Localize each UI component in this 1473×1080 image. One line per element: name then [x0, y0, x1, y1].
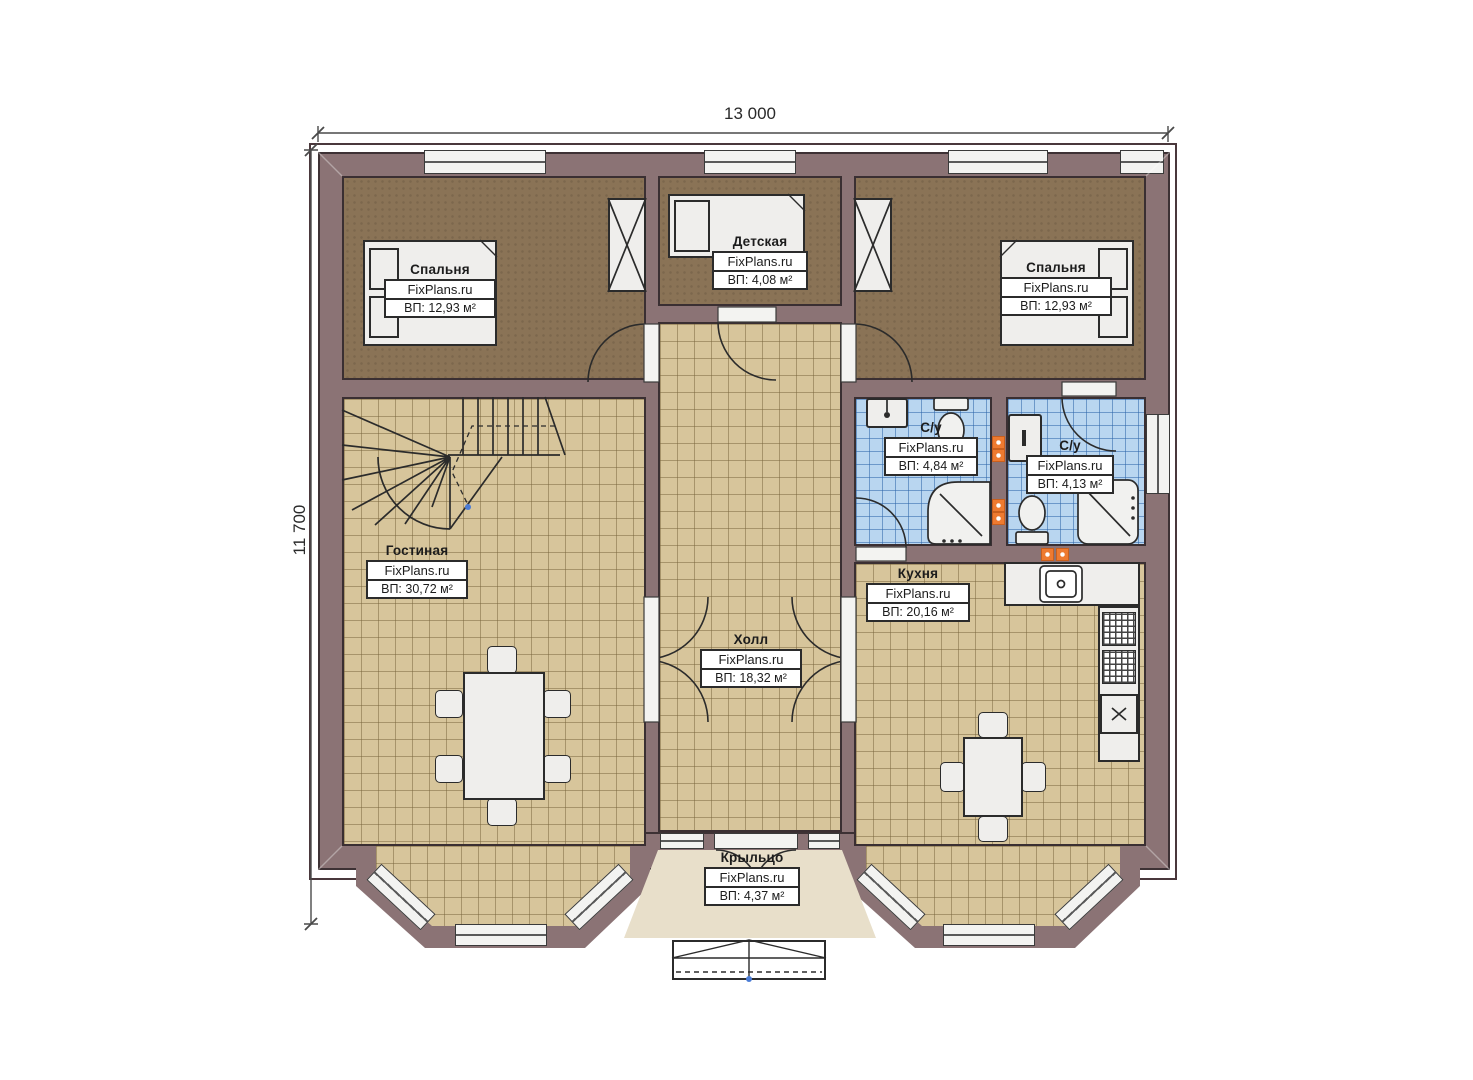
floor-hall	[658, 322, 842, 832]
room-name: Крыльцо	[704, 850, 800, 865]
room-area: ВП: 18,32 м²	[702, 670, 800, 686]
room-label-kitchen: Кухня FixPlans.ru ВП: 20,16 м²	[866, 566, 970, 622]
room-area: ВП: 4,08 м²	[714, 272, 806, 288]
window-right-wall	[1146, 414, 1170, 494]
dining-table	[463, 672, 545, 800]
kitchen-counter-top	[1004, 562, 1140, 606]
window-nursery	[704, 150, 796, 174]
room-info-box: FixPlans.ru ВП: 4,37 м²	[704, 867, 800, 906]
chair	[487, 798, 517, 826]
room-name: Холл	[700, 632, 802, 647]
kitchen-table	[963, 737, 1023, 817]
brand-watermark: FixPlans.ru	[714, 253, 806, 272]
room-label-hall: Холл FixPlans.ru ВП: 18,32 м²	[700, 632, 802, 688]
room-info-box: FixPlans.ru ВП: 4,84 м²	[884, 437, 978, 476]
wardrobe-left	[608, 198, 646, 292]
room-label-bedroom-right: Спальня FixPlans.ru ВП: 12,93 м²	[1000, 260, 1112, 316]
chair	[435, 755, 463, 783]
room-area: ВП: 4,37 м²	[706, 888, 798, 904]
window-top-corner	[1120, 150, 1164, 174]
brand-watermark: FixPlans.ru	[386, 281, 494, 300]
outlet-marker	[1056, 548, 1069, 561]
entry-sidelight-left	[660, 833, 704, 849]
room-info-box: FixPlans.ru ВП: 20,16 м²	[866, 583, 970, 622]
brand-watermark: FixPlans.ru	[868, 585, 968, 604]
outlet-marker	[1041, 548, 1054, 561]
window-bedroom-left	[424, 150, 546, 174]
room-info-box: FixPlans.ru ВП: 30,72 м²	[366, 560, 468, 599]
brand-watermark: FixPlans.ru	[1028, 457, 1112, 476]
outlet-marker	[992, 499, 1005, 512]
brand-watermark: FixPlans.ru	[706, 869, 798, 888]
entry-sidelight-right	[808, 833, 840, 849]
room-label-nursery: Детская FixPlans.ru ВП: 4,08 м²	[712, 234, 808, 290]
outlet-marker	[992, 436, 1005, 449]
brand-watermark: FixPlans.ru	[886, 439, 976, 458]
porch-steps	[672, 940, 826, 980]
chair	[940, 762, 965, 792]
room-info-box: FixPlans.ru ВП: 18,32 м²	[700, 649, 802, 688]
room-area: ВП: 12,93 м²	[386, 300, 494, 316]
stove-burners	[1102, 612, 1136, 646]
chair	[543, 690, 571, 718]
room-label-porch: Крыльцо FixPlans.ru ВП: 4,37 м²	[704, 850, 800, 906]
floor-plan: 13 000 11 700 Спальня FixPlans.ru ВП: 12…	[0, 0, 1473, 1080]
room-area: ВП: 12,93 м²	[1002, 298, 1110, 314]
room-area: ВП: 4,84 м²	[886, 458, 976, 474]
room-info-box: FixPlans.ru ВП: 4,08 м²	[712, 251, 808, 290]
chair	[543, 755, 571, 783]
chair	[487, 646, 517, 674]
room-label-living: Гостиная FixPlans.ru ВП: 30,72 м²	[366, 543, 468, 599]
room-area: ВП: 20,16 м²	[868, 604, 968, 620]
dimension-width-label: 13 000	[660, 104, 840, 124]
room-info-box: FixPlans.ru ВП: 12,93 м²	[384, 279, 496, 318]
window-bedroom-right	[948, 150, 1048, 174]
room-name: Кухня	[866, 566, 970, 581]
chair	[978, 712, 1008, 738]
window-bay-right-front	[943, 924, 1035, 946]
outlet-marker	[992, 512, 1005, 525]
brand-watermark: FixPlans.ru	[368, 562, 466, 581]
room-area: ВП: 30,72 м²	[368, 581, 466, 597]
room-area: ВП: 4,13 м²	[1028, 476, 1112, 492]
stove-burners	[1102, 650, 1136, 684]
room-label-bedroom-left: Спальня FixPlans.ru ВП: 12,93 м²	[384, 262, 496, 318]
dimension-height-label: 11 700	[290, 470, 310, 590]
brand-watermark: FixPlans.ru	[702, 651, 800, 670]
room-name: Гостиная	[366, 543, 468, 558]
pillow	[674, 200, 710, 252]
chair	[978, 816, 1008, 842]
room-name: С/у	[884, 420, 978, 435]
chair	[1021, 762, 1046, 792]
room-label-bath-1: С/у FixPlans.ru ВП: 4,84 м²	[884, 420, 978, 476]
room-name: Детская	[712, 234, 808, 249]
room-info-box: FixPlans.ru ВП: 4,13 м²	[1026, 455, 1114, 494]
wardrobe-right	[854, 198, 892, 292]
appliance-box	[1100, 694, 1138, 734]
room-label-bath-2: С/у FixPlans.ru ВП: 4,13 м²	[1026, 438, 1114, 494]
entry-door-opening	[714, 833, 798, 849]
brand-watermark: FixPlans.ru	[1002, 279, 1110, 298]
chair	[435, 690, 463, 718]
room-name: Спальня	[1000, 260, 1112, 275]
outlet-marker	[992, 449, 1005, 462]
room-info-box: FixPlans.ru ВП: 12,93 м²	[1000, 277, 1112, 316]
room-name: Спальня	[384, 262, 496, 277]
room-name: С/у	[1026, 438, 1114, 453]
window-bay-left-front	[455, 924, 547, 946]
